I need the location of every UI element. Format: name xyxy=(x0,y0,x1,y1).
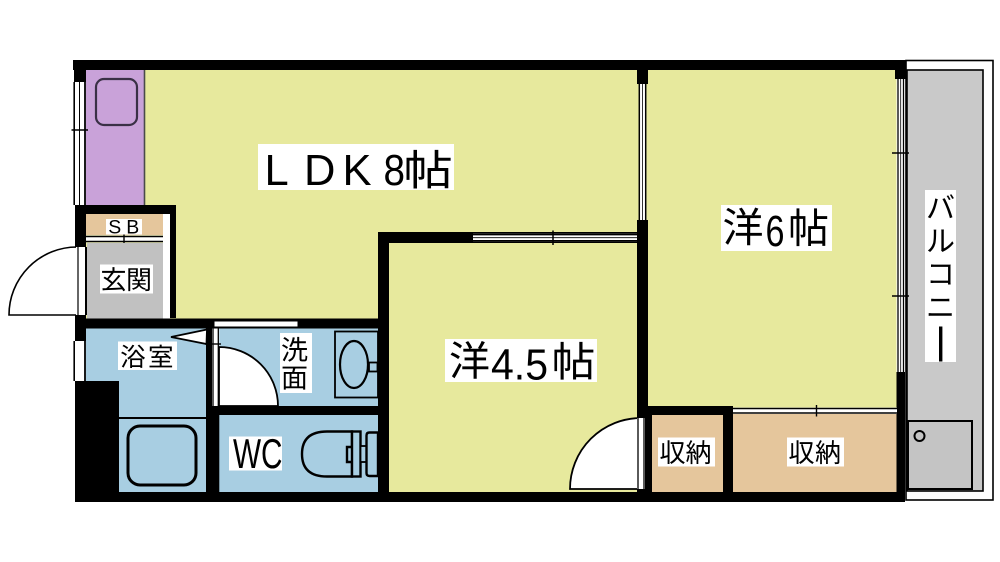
svg-text:4.5: 4.5 xyxy=(491,342,548,390)
svg-text:L: L xyxy=(265,147,289,195)
svg-text:D: D xyxy=(304,147,335,195)
svg-text:6: 6 xyxy=(766,208,785,256)
svg-text:8: 8 xyxy=(384,147,406,195)
svg-text:K: K xyxy=(343,147,372,195)
svg-text:WC: WC xyxy=(233,430,283,477)
